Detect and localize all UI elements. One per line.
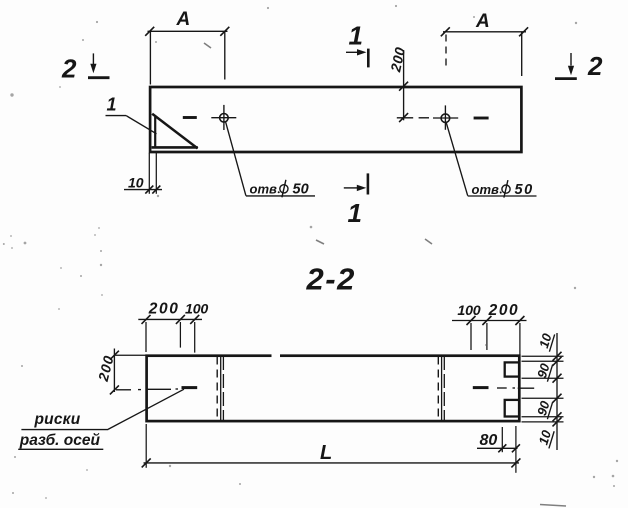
svg-text:90: 90	[534, 398, 553, 417]
svg-text:2: 2	[61, 54, 77, 84]
svg-text:2-2: 2-2	[306, 262, 356, 297]
svg-text:1: 1	[349, 21, 363, 51]
svg-text:10: 10	[536, 331, 555, 350]
svg-text:1: 1	[107, 95, 117, 115]
svg-text:отв: отв	[472, 182, 500, 197]
svg-text:2: 2	[587, 51, 603, 81]
svg-text:200: 200	[387, 45, 408, 74]
svg-text:200: 200	[95, 353, 117, 383]
svg-text:100: 100	[457, 303, 480, 319]
svg-text:L: L	[320, 442, 332, 464]
svg-text:50: 50	[515, 182, 534, 198]
svg-text:риски: риски	[34, 411, 81, 428]
svg-text:200: 200	[148, 301, 180, 318]
svg-text:90: 90	[534, 361, 553, 380]
svg-text:80: 80	[480, 432, 498, 449]
svg-text:10: 10	[536, 428, 555, 447]
svg-text:200: 200	[488, 302, 520, 319]
svg-text:разб. осей: разб. осей	[19, 432, 101, 449]
svg-text:10: 10	[128, 174, 144, 190]
svg-text:1: 1	[348, 198, 362, 228]
svg-text:отв: отв	[250, 182, 278, 197]
svg-text:50: 50	[293, 182, 309, 198]
svg-text:100: 100	[185, 302, 208, 318]
svg-text:A: A	[475, 11, 490, 32]
svg-text:A: A	[176, 9, 191, 30]
